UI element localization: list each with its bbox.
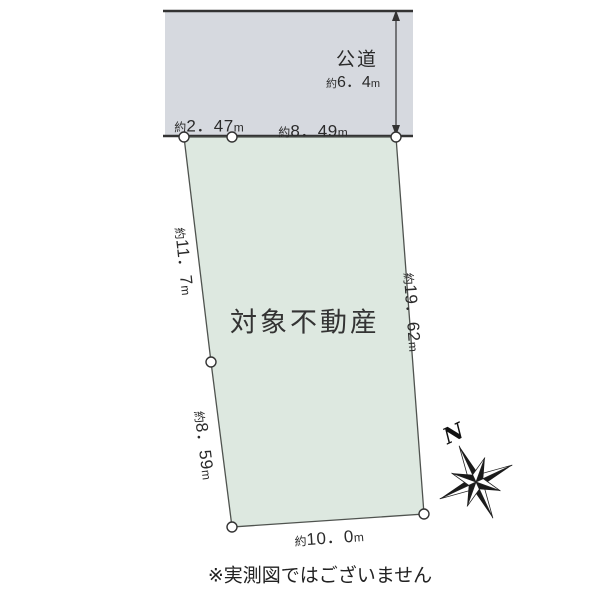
dim-value: 2．47	[186, 117, 233, 136]
survey-point-bottom-left	[227, 522, 237, 532]
dim-unit: m	[178, 285, 193, 296]
dim-prefix: 約	[294, 534, 307, 549]
dim-prefix: 約	[401, 272, 416, 285]
disclaimer-text: ※実測図ではございません	[208, 561, 432, 588]
compass-north-label: N	[438, 418, 469, 451]
compass-rose-icon: N	[412, 405, 529, 535]
parcel-title: 対象不動産	[230, 301, 380, 340]
dim-unit: m	[406, 341, 421, 352]
dim-top-left: 約2．47m	[174, 112, 243, 137]
road-width-unit: m	[371, 78, 380, 90]
survey-point-left-mid	[206, 357, 216, 367]
survey-point-bottom-right	[419, 509, 429, 519]
dim-unit: m	[199, 469, 214, 481]
road-width-prefix: 約	[326, 78, 337, 90]
dim-value: 10．0	[306, 527, 355, 549]
plot-diagram: N 公道 約6．4m 対象不動産 約2．47m 約8．49m 約11．7m 約8…	[0, 0, 600, 600]
dim-value: 8．59	[192, 422, 217, 471]
dim-bottom: 約10．0m	[294, 521, 365, 551]
dim-prefix: 約	[174, 121, 186, 135]
dim-unit: m	[338, 126, 348, 140]
dim-value: 11．7	[172, 238, 196, 286]
road-width-value: 6．4	[337, 74, 371, 91]
dim-unit: m	[353, 530, 364, 545]
dim-unit: m	[234, 121, 244, 135]
dim-value: 8．49	[290, 122, 337, 141]
survey-point-top-right	[391, 132, 401, 142]
road-width-label: 約6．4m	[326, 68, 380, 92]
dim-prefix: 約	[278, 126, 290, 140]
dim-top-right: 約8．49m	[278, 117, 347, 142]
dim-value: 19．62	[401, 284, 424, 343]
